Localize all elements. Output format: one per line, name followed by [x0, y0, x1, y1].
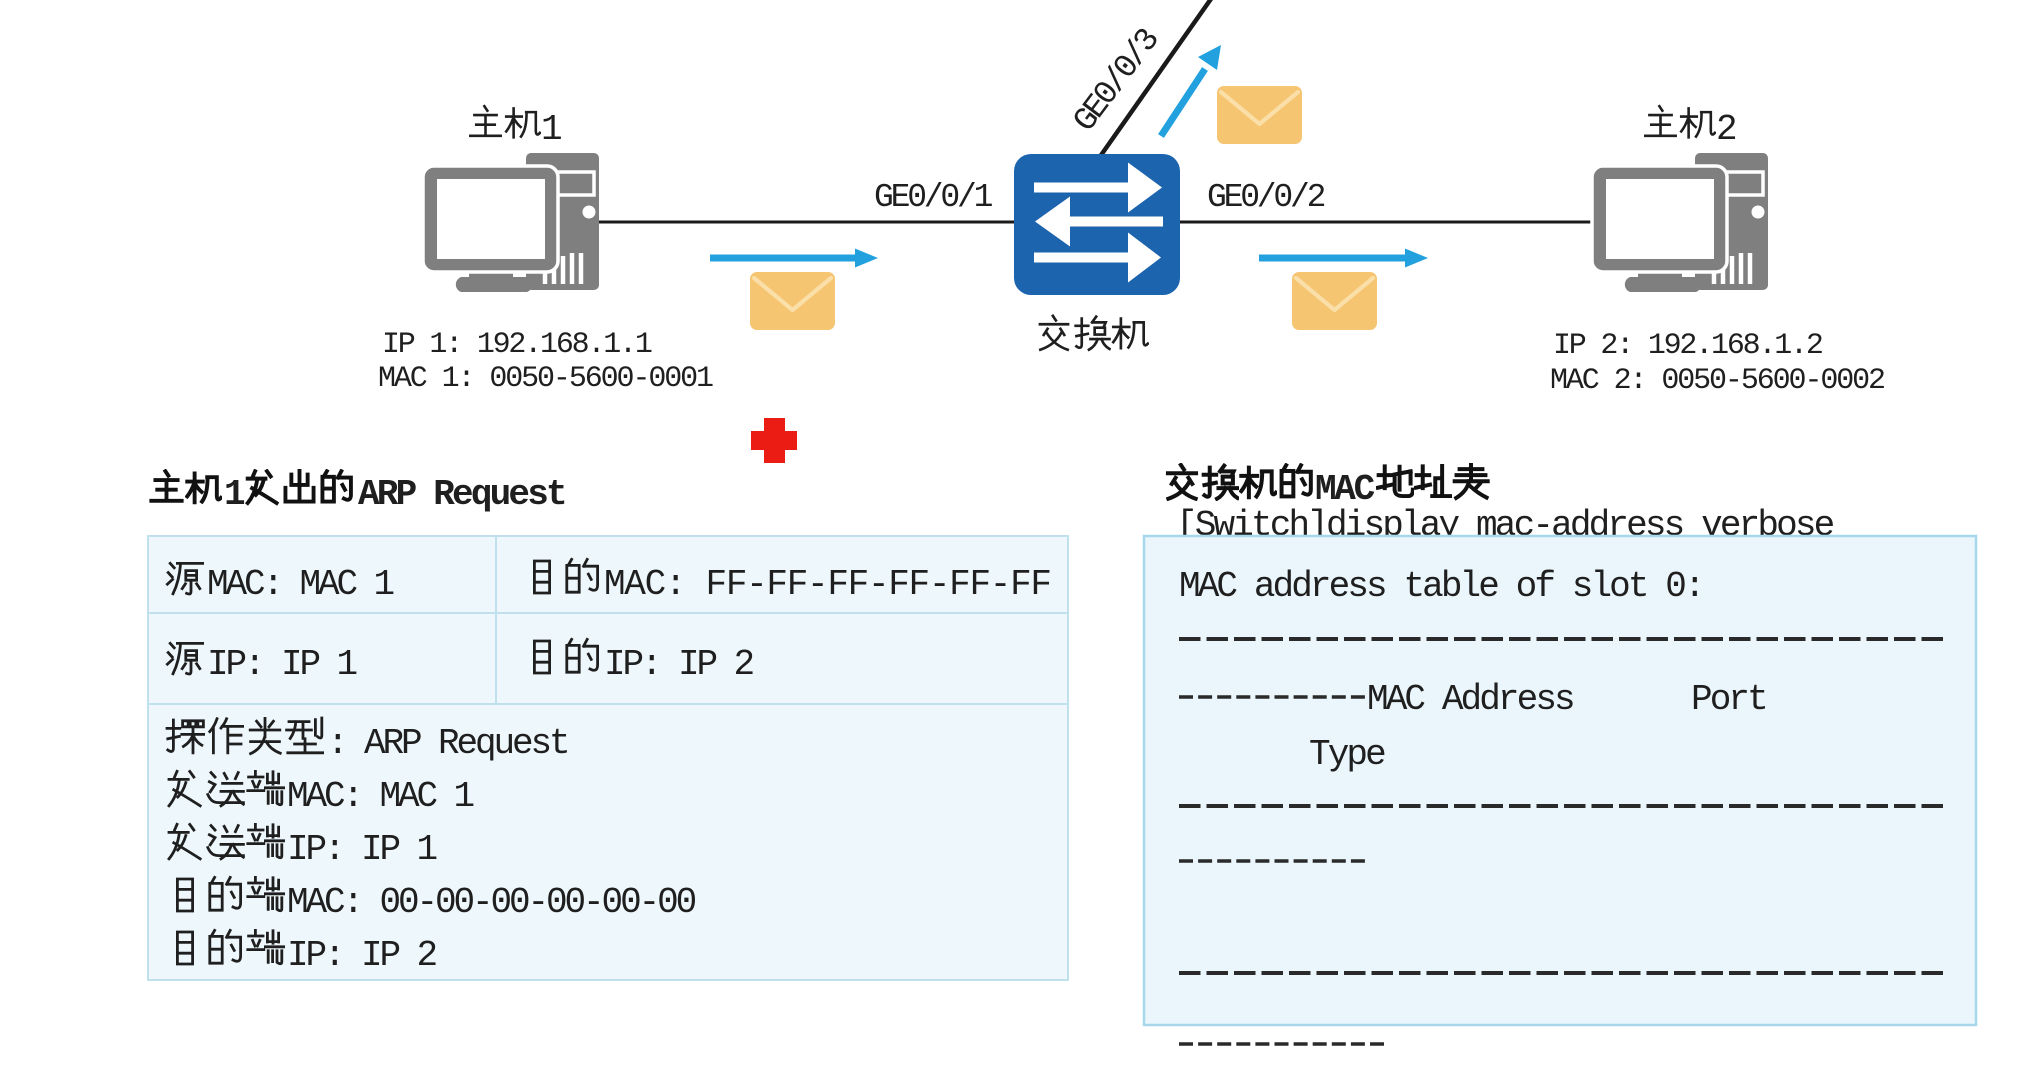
svg-text:MAC: 00-00-00-00-00-00: MAC: 00-00-00-00-00-00: [287, 882, 696, 923]
svg-text:Port: Port: [1691, 679, 1766, 720]
svg-text:MAC: FF-FF-FF-FF-FF-FF: MAC: FF-FF-FF-FF-FF-FF: [604, 564, 1051, 605]
svg-text:MAC address table of slot 0:: MAC address table of slot 0:: [1179, 566, 1703, 607]
svg-text:MAC 1: 0050-5600-0001: MAC 1: 0050-5600-0001: [378, 362, 713, 396]
svg-text:IP: IP 2: IP: IP 2: [287, 935, 437, 976]
svg-text:IP: IP 2: IP: IP 2: [604, 644, 754, 685]
svg-text:Type: Type: [1309, 734, 1385, 775]
svg-text:MAC: MAC: [1315, 469, 1375, 510]
svg-text:GE0/0/1: GE0/0/1: [874, 179, 993, 216]
svg-text:1: 1: [541, 109, 561, 150]
svg-text:MAC: MAC 1: MAC: MAC 1: [287, 776, 474, 817]
svg-text:IP: IP 1: IP: IP 1: [207, 644, 357, 685]
svg-text:MAC: MAC 1: MAC: MAC 1: [207, 564, 394, 605]
svg-text:IP 2: 192.168.1.2: IP 2: 192.168.1.2: [1553, 329, 1822, 363]
svg-text:IP 1: 192.168.1.1: IP 1: 192.168.1.1: [382, 328, 652, 362]
svg-text:GE0/0/2: GE0/0/2: [1207, 179, 1325, 216]
svg-text:IP: IP 1: IP: IP 1: [287, 829, 437, 870]
svg-text:ARP Request: ARP Request: [358, 474, 565, 515]
svg-text:2: 2: [1716, 109, 1736, 150]
svg-text:1: 1: [224, 474, 245, 515]
svg-text:MAC 2: 0050-5600-0002: MAC 2: 0050-5600-0002: [1550, 364, 1884, 398]
svg-text:: ARP Request: : ARP Request: [327, 723, 568, 764]
svg-text:MAC Address: MAC Address: [1367, 679, 1573, 720]
